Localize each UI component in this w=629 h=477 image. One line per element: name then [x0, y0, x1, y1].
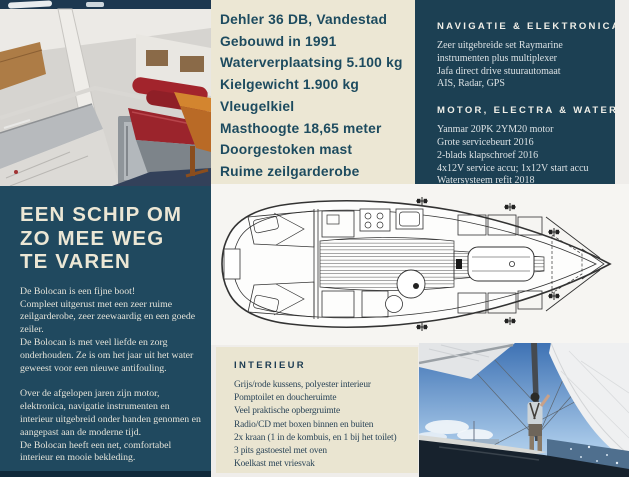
spec-line: Masthoogte 18,65 meter [220, 118, 415, 140]
deck-plan-drawing [213, 187, 617, 342]
spec-line: Ruime zeilgarderobe [220, 161, 415, 183]
specs-list: Dehler 36 DB, VandestadGebouwd in 1991Wa… [220, 9, 415, 183]
navigation-section-list: Zeer uitgebreide set Raymarineinstrument… [437, 40, 607, 91]
spec-line: Kielgewicht 1.900 kg [220, 74, 415, 96]
story-title-line: EEN SCHIP OM [20, 203, 201, 227]
interior-line: Radio/CD met boxen binnen en buiten [234, 419, 414, 432]
interior-line: Veel praktische opbergruimte [234, 405, 414, 418]
motor-line: 4x12V service accu; 1x12V start accu [437, 163, 607, 176]
sailing-illustration [419, 343, 629, 477]
brochure-page: Dehler 36 DB, VandestadGebouwd in 1991Wa… [0, 0, 629, 477]
navigation-line: Jafa direct drive stuurautomaat [437, 66, 607, 79]
motor-section-title: MOTOR, ELECTRA & WATER [437, 105, 607, 116]
cabin-interior-illustration [0, 0, 211, 186]
motor-line: Grote servicebeurt 2016 [437, 137, 607, 150]
story-paragraph: De Bolocan is een fijne boot! [20, 286, 201, 299]
interior-section-title: INTERIEUR [234, 360, 414, 371]
bottom-accent-strip [0, 471, 211, 477]
motor-section-list: Yanmar 20PK 2YM20 motorGrote servicebeur… [437, 124, 607, 188]
deck-plan-area [211, 184, 629, 345]
story-title-line: TE VAREN [20, 250, 201, 274]
interior-line: Pomptoilet en doucheruimte [234, 392, 414, 405]
interior-line: Koelkast met vriesvak [234, 458, 414, 471]
motor-line: 2-blads klapschroef 2016 [437, 150, 607, 163]
story-title-line: ZO MEE WEG [20, 227, 201, 251]
interior-line: 2x kraan (1 in de kombuis, en 1 bij het … [234, 432, 414, 445]
interior-panel: INTERIEUR Grijs/rode kussens, polyester … [216, 347, 418, 473]
navigation-line: AIS, Radar, GPS [437, 78, 607, 91]
spec-line: Waterverplaatsing 5.100 kg [220, 52, 415, 74]
equipment-panel: NAVIGATIE & ELEKTRONICA Zeer uitgebreide… [415, 0, 615, 184]
navigation-line: instrumenten plus multiplexer [437, 53, 607, 66]
spec-line: Dehler 36 DB, Vandestad [220, 9, 415, 31]
story-paragraph: Compleet uitgerust met een zeer ruime ze… [20, 299, 201, 337]
story-panel: EEN SCHIP OMZO MEE WEGTE VAREN De Boloca… [0, 186, 211, 471]
navigation-section-title: NAVIGATIE & ELEKTRONICA [437, 21, 607, 32]
motor-line: Yanmar 20PK 2YM20 motor [437, 124, 607, 137]
navigation-line: Zeer uitgebreide set Raymarine [437, 40, 607, 53]
story-paragraph-block: De Bolocan is een fijne boot!Compleet ui… [20, 286, 201, 376]
story-paragraph: De Bolocan heeft een net, comfortabel in… [20, 440, 201, 466]
story-title: EEN SCHIP OMZO MEE WEGTE VAREN [20, 203, 201, 274]
spec-line: Doorgestoken mast [220, 139, 415, 161]
interior-list: Grijs/rode kussens, polyester interieurP… [234, 379, 414, 471]
interior-line: 3 pits gastoestel met oven [234, 445, 414, 458]
spec-line: Gebouwd in 1991 [220, 31, 415, 53]
sailing-photo [419, 343, 629, 477]
interior-line: Grijs/rode kussens, polyester interieur [234, 379, 414, 392]
spec-line: Vleugelkiel [220, 96, 415, 118]
story-paragraph: Over de afgelopen jaren zijn motor, elek… [20, 388, 201, 439]
cabin-interior-photo [0, 0, 211, 186]
story-body: De Bolocan is een fijne boot!Compleet ui… [20, 286, 201, 477]
story-paragraph: De Bolocan is met veel liefde en zorg on… [20, 337, 201, 375]
specs-panel: Dehler 36 DB, VandestadGebouwd in 1991Wa… [211, 0, 415, 189]
story-paragraph-block: Over de afgelopen jaren zijn motor, elek… [20, 388, 201, 465]
